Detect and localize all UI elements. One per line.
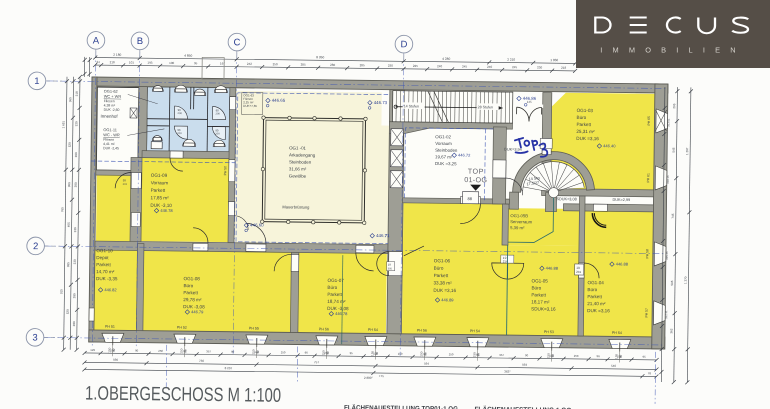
svg-text:17,85 m²: 17,85 m²	[150, 195, 169, 200]
svg-text:90: 90	[525, 353, 529, 357]
svg-text:545: 545	[672, 147, 676, 152]
svg-text:201: 201	[123, 182, 128, 186]
svg-text:A: A	[93, 36, 100, 47]
svg-text:330: 330	[73, 227, 77, 232]
svg-text:594: 594	[424, 362, 429, 366]
svg-text:IMMOBILIEN: IMMOBILIEN	[600, 46, 746, 55]
svg-text:357: 357	[499, 353, 504, 357]
svg-text:Serverraum: Serverraum	[510, 219, 532, 224]
svg-text:2 210: 2 210	[507, 58, 515, 62]
svg-text:95: 95	[350, 351, 354, 355]
svg-text:4 280: 4 280	[442, 57, 450, 61]
svg-text:PH 54: PH 54	[470, 329, 480, 333]
svg-text:WC - WR: WC - WR	[103, 132, 120, 137]
svg-text:PH 52: PH 52	[177, 326, 187, 330]
svg-text:PH 55: PH 55	[249, 326, 259, 330]
svg-text:31: 31	[664, 310, 668, 314]
svg-text:446.65: 446.65	[272, 98, 286, 103]
svg-text:PH 65: PH 65	[647, 116, 651, 126]
svg-text:90: 90	[135, 349, 139, 353]
svg-text:Parkett: Parkett	[531, 292, 546, 297]
svg-text:520: 520	[66, 309, 70, 314]
svg-text:245: 245	[512, 65, 517, 69]
svg-text:PH 50: PH 50	[223, 166, 227, 176]
svg-text:1 050: 1 050	[550, 58, 558, 62]
svg-text:OG1-05: OG1-05	[532, 278, 549, 283]
svg-text:230: 230	[537, 65, 542, 69]
svg-text:14 Stufen: 14 Stufen	[404, 104, 419, 108]
svg-text:19: 19	[388, 263, 392, 267]
svg-text:DUK =3,16: DUK =3,16	[587, 308, 610, 313]
svg-text:18,17 m²: 18,17 m²	[531, 299, 550, 304]
svg-text:218: 218	[561, 66, 566, 70]
svg-text:245: 245	[462, 65, 467, 69]
svg-text:DUK -3,35: DUK -3,35	[96, 276, 118, 281]
svg-text:250: 250	[273, 62, 278, 66]
svg-text:2: 2	[33, 241, 38, 252]
svg-text:14,70 m²: 14,70 m²	[96, 269, 115, 274]
svg-text:OG1 -01: OG1 -01	[289, 145, 306, 150]
svg-text:190: 190	[169, 61, 174, 65]
svg-text:21,40 m²: 21,40 m²	[587, 301, 606, 306]
svg-text:300: 300	[74, 152, 78, 157]
svg-text:240: 240	[437, 64, 442, 68]
svg-text:Büro: Büro	[531, 285, 541, 290]
svg-text:446.88: 446.88	[616, 261, 629, 266]
svg-text:385: 385	[66, 262, 70, 267]
svg-text:200: 200	[215, 132, 220, 136]
svg-text:25,31 m²: 25,31 m²	[576, 129, 595, 134]
svg-text:200: 200	[177, 131, 182, 135]
svg-text:Parkett: Parkett	[434, 273, 449, 278]
svg-text:242: 242	[247, 62, 252, 66]
svg-text:250: 250	[281, 350, 286, 354]
svg-text:193: 193	[147, 61, 152, 65]
svg-text:33,38 m²: 33,38 m²	[433, 280, 452, 285]
svg-text:2 880°: 2 880°	[364, 376, 374, 380]
svg-text:446.89: 446.89	[441, 297, 454, 302]
svg-text:Büro: Büro	[587, 287, 597, 292]
svg-text:446.78: 446.78	[160, 208, 173, 213]
svg-text:446.40: 446.40	[603, 143, 616, 148]
svg-text:OG1-07: OG1-07	[328, 278, 345, 283]
svg-text:76: 76	[648, 371, 652, 375]
svg-text:101: 101	[129, 60, 134, 64]
svg-text:Büro: Büro	[327, 285, 337, 290]
svg-text:320: 320	[74, 121, 78, 126]
svg-text:240: 240	[487, 65, 492, 69]
svg-text:300: 300	[74, 182, 78, 187]
svg-text:Mauerbrüstung: Mauerbrüstung	[282, 204, 309, 209]
svg-text:1 207: 1 207	[685, 147, 689, 155]
svg-text:OG1-06: OG1-06	[434, 258, 451, 263]
svg-text:446.71: 446.71	[376, 233, 390, 238]
svg-text:Arkadengang: Arkadengang	[289, 152, 316, 157]
svg-text:51: 51	[666, 118, 670, 122]
svg-text:280: 280	[72, 293, 76, 298]
svg-text:201: 201	[576, 270, 581, 274]
svg-text:280: 280	[72, 321, 76, 326]
svg-text:24: 24	[96, 60, 100, 64]
svg-text:DUK=2,99: DUK=2,99	[613, 198, 631, 202]
svg-text:915: 915	[59, 289, 63, 294]
svg-text:Vorraum: Vorraum	[151, 180, 169, 185]
svg-text:18,74 m²: 18,74 m²	[327, 299, 346, 304]
svg-text:446.86: 446.86	[523, 96, 537, 101]
svg-text:B: B	[137, 36, 143, 47]
svg-text:PH 61: PH 61	[646, 173, 650, 183]
svg-text:1: 1	[34, 76, 39, 87]
svg-text:1.OBERGESCHOSS M 1:100: 1.OBERGESCHOSS M 1:100	[85, 382, 281, 406]
svg-text:4 850: 4 850	[184, 54, 192, 58]
svg-text:357: 357	[206, 349, 211, 353]
svg-text:Büro: Büro	[183, 283, 193, 288]
svg-text:PH 56: PH 56	[417, 328, 427, 332]
svg-text:WC + WR: WC + WR	[104, 94, 122, 99]
svg-text:285: 285	[301, 63, 306, 67]
svg-text:250: 250	[158, 349, 163, 353]
svg-text:PH 54: PH 54	[612, 331, 622, 335]
svg-text:Parkett: Parkett	[327, 292, 342, 297]
svg-text:200: 200	[178, 111, 183, 115]
svg-text:OG1-03: OG1-03	[577, 108, 594, 113]
svg-text:365: 365	[68, 97, 72, 102]
svg-text:446.79: 446.79	[191, 309, 204, 314]
svg-text:446.78: 446.78	[335, 311, 348, 316]
svg-text:DUK -2,60: DUK -2,60	[104, 108, 120, 112]
svg-text:8 350: 8 350	[316, 55, 324, 59]
svg-text:305: 305	[388, 266, 393, 270]
svg-text:Innenhof: Innenhof	[100, 114, 118, 119]
svg-text:1 370: 1 370	[684, 276, 688, 284]
svg-text:Depot: Depot	[96, 255, 109, 260]
svg-text:218: 218	[110, 60, 115, 64]
svg-text:765: 765	[60, 207, 64, 212]
svg-text:280: 280	[330, 63, 335, 67]
svg-text:OG1-08: OG1-08	[184, 276, 201, 281]
svg-text:300: 300	[67, 182, 71, 187]
svg-text:SDUK=3,16: SDUK=3,16	[531, 306, 556, 311]
svg-text:OG1-10: OG1-10	[96, 248, 113, 253]
svg-text:DUK =3,25: DUK =3,25	[435, 161, 457, 166]
svg-text:318: 318	[75, 91, 79, 96]
svg-text:96: 96	[597, 354, 601, 358]
svg-text:C: C	[233, 37, 240, 48]
svg-text:540: 540	[611, 364, 616, 368]
svg-text:Steinboden: Steinboden	[435, 148, 458, 153]
svg-text:PH 56: PH 56	[319, 327, 329, 331]
svg-text:Parkett: Parkett	[576, 122, 591, 127]
svg-text:590: 590	[113, 358, 118, 362]
svg-text:DUK =3,16: DUK =3,16	[433, 288, 456, 293]
svg-text:D: D	[400, 39, 407, 50]
svg-text:593: 593	[522, 363, 527, 367]
svg-text:8 207: 8 207	[225, 366, 233, 370]
svg-text:446.72: 446.72	[458, 152, 471, 157]
svg-text:5,39 m²: 5,39 m²	[510, 225, 525, 230]
svg-text:129: 129	[90, 348, 95, 352]
svg-text:730: 730	[199, 359, 204, 363]
svg-text:01-OG: 01-OG	[464, 175, 487, 184]
svg-text:250: 250	[449, 352, 454, 356]
svg-text:99: 99	[123, 178, 127, 182]
svg-text:150: 150	[398, 352, 403, 356]
svg-text:745: 745	[671, 213, 675, 218]
svg-text:757: 757	[314, 360, 319, 364]
svg-text:96: 96	[305, 351, 309, 355]
svg-text:29,78 m²: 29,78 m²	[183, 297, 202, 302]
svg-text:162: 162	[664, 314, 668, 319]
svg-text:PH 57: PH 57	[645, 308, 649, 318]
svg-text:Vorraum: Vorraum	[435, 141, 452, 146]
svg-text:446.88: 446.88	[546, 266, 559, 271]
svg-text:PH 51: PH 51	[105, 325, 115, 329]
svg-text:95: 95	[194, 61, 198, 65]
svg-text:Parkett: Parkett	[96, 262, 111, 267]
svg-text:31,66 m²: 31,66 m²	[289, 166, 307, 171]
svg-text:DUK =3,16: DUK =3,16	[576, 136, 599, 141]
svg-text:90: 90	[231, 350, 235, 354]
svg-text:PH 58: PH 58	[645, 249, 649, 259]
svg-text:330: 330	[73, 259, 77, 264]
svg-text:1 651: 1 651	[61, 121, 65, 129]
svg-text:PH 53: PH 53	[544, 330, 554, 334]
svg-text:Steinboden: Steinboden	[289, 159, 312, 164]
svg-text:250: 250	[574, 354, 579, 358]
svg-text:36: 36	[665, 251, 669, 255]
svg-text:Parkett: Parkett	[183, 290, 198, 295]
svg-text:16: 16	[666, 175, 670, 179]
svg-text:155: 155	[665, 255, 669, 260]
svg-text:Gewölbe: Gewölbe	[289, 173, 307, 178]
svg-text:DUK=3,94: DUK=3,94	[504, 148, 522, 152]
svg-text:+75: +75	[379, 374, 384, 378]
svg-text:595: 595	[670, 280, 674, 285]
svg-text:363°: 363°	[504, 370, 511, 374]
svg-text:Parkett: Parkett	[587, 294, 602, 299]
svg-text:446.82: 446.82	[104, 287, 117, 292]
svg-text:28 Stufen: 28 Stufen	[478, 105, 493, 109]
svg-text:362: 362	[669, 328, 673, 333]
svg-text:95: 95	[643, 355, 647, 359]
svg-text:285: 285	[360, 63, 365, 67]
svg-text:200: 200	[216, 112, 221, 116]
svg-text:520: 520	[68, 142, 72, 147]
svg-text:3: 3	[32, 332, 37, 343]
svg-text:OG1-05B: OG1-05B	[510, 213, 528, 218]
svg-text:295: 295	[672, 103, 676, 108]
svg-text:Büro: Büro	[434, 266, 444, 271]
svg-text:PH 54: PH 54	[368, 328, 378, 332]
svg-text:230: 230	[388, 64, 393, 68]
svg-text:Parkett: Parkett	[151, 188, 166, 193]
svg-text:19,67 m²: 19,67 m²	[435, 154, 453, 159]
svg-text:OG1-09: OG1-09	[151, 173, 168, 178]
svg-text:2 180: 2 180	[113, 53, 121, 57]
svg-text:163: 163	[666, 122, 670, 127]
svg-text:446.73: 446.73	[374, 100, 388, 105]
svg-text:DUK -2,45: DUK -2,45	[103, 146, 119, 150]
svg-text:225: 225	[413, 64, 418, 68]
svg-text:OG1-02: OG1-02	[435, 134, 451, 139]
svg-text:446.60: 446.60	[250, 222, 264, 227]
svg-text:Büro: Büro	[577, 115, 587, 120]
svg-text:SDUK=3,08: SDUK=3,08	[557, 197, 577, 201]
svg-text:OG1-04: OG1-04	[587, 280, 604, 285]
svg-text:465: 465	[67, 222, 71, 227]
svg-text:158: 158	[666, 179, 670, 184]
svg-text:DUK+7,65: DUK+7,65	[243, 104, 257, 108]
